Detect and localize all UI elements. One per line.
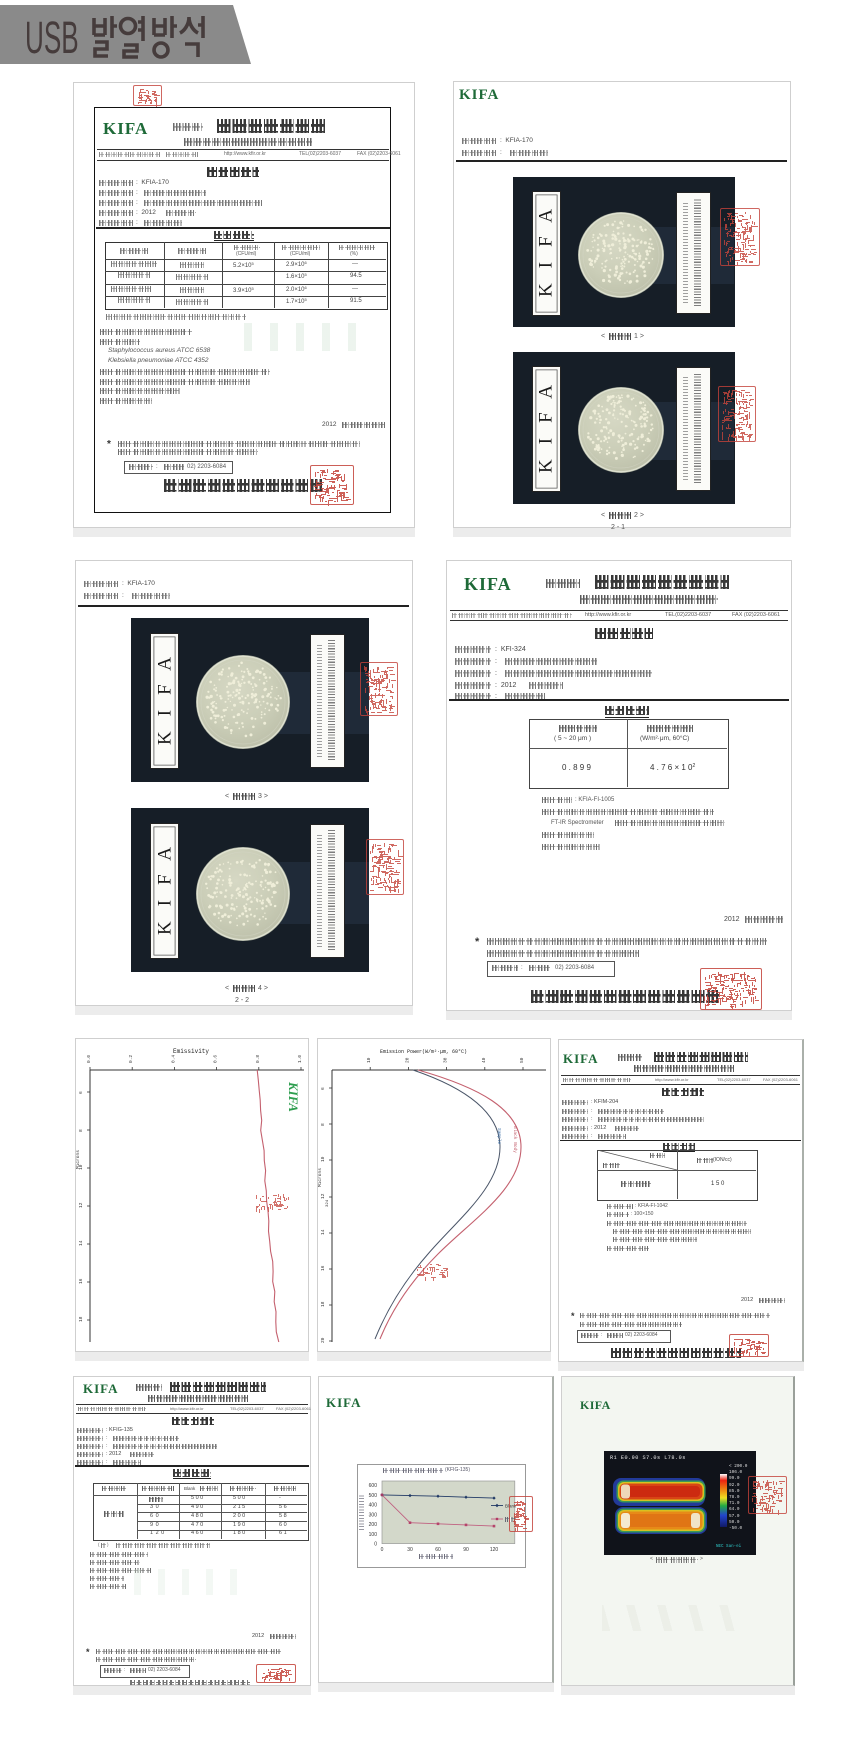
svg-text:0.0: 0.0 — [86, 1055, 92, 1063]
svg-text:Microns: Microns — [318, 1168, 323, 1187]
svg-text:40: 40 — [481, 1057, 487, 1063]
svg-text:16: 16 — [320, 1265, 326, 1271]
svg-text:300: 300 — [369, 1512, 378, 1518]
svg-text:600: 600 — [369, 1483, 378, 1489]
svg-text:100: 100 — [369, 1532, 378, 1538]
svg-text:Emission Power(W/m²·μm, 60°C): Emission Power(W/m²·μm, 60°C) — [380, 1049, 467, 1055]
svg-text:18: 18 — [320, 1301, 326, 1307]
svg-text:14: 14 — [78, 1240, 84, 1246]
svg-text:KIFA: KIFA — [548, 1078, 550, 1109]
svg-text:30: 30 — [407, 1547, 413, 1553]
svg-text:18: 18 — [78, 1316, 84, 1322]
svg-text:Black Body: Black Body — [512, 1126, 518, 1153]
svg-text:90: 90 — [463, 1547, 469, 1553]
svg-text:0.2: 0.2 — [128, 1055, 134, 1063]
svg-text:0: 0 — [381, 1547, 384, 1553]
svg-text:200: 200 — [369, 1522, 378, 1528]
svg-text:324: 324 — [326, 1199, 330, 1207]
svg-text:60: 60 — [435, 1547, 441, 1553]
svg-text:Emissivity: Emissivity — [173, 1048, 209, 1055]
svg-text:Sample: Sample — [496, 1128, 502, 1145]
svg-text:30: 30 — [443, 1057, 449, 1063]
svg-text:20: 20 — [320, 1337, 326, 1343]
svg-text:500: 500 — [369, 1493, 378, 1499]
svg-text:KIFA: KIFA — [286, 1081, 301, 1112]
svg-text:6: 6 — [78, 1091, 84, 1094]
svg-text:120: 120 — [490, 1547, 499, 1553]
svg-text:16: 16 — [78, 1278, 84, 1284]
svg-text:6: 6 — [320, 1087, 326, 1090]
svg-text:400: 400 — [369, 1503, 378, 1509]
svg-text:10: 10 — [320, 1156, 326, 1162]
svg-text:20: 20 — [404, 1057, 410, 1063]
svg-text:14: 14 — [320, 1229, 326, 1235]
svg-text:0: 0 — [374, 1542, 377, 1548]
svg-text:1.0: 1.0 — [297, 1055, 303, 1063]
svg-text:12: 12 — [78, 1202, 84, 1208]
svg-text:8: 8 — [320, 1123, 326, 1126]
svg-text:50: 50 — [519, 1057, 525, 1063]
svg-text:0.8: 0.8 — [255, 1055, 261, 1063]
svg-text:0.6: 0.6 — [213, 1055, 219, 1063]
svg-text:0.4: 0.4 — [170, 1055, 176, 1063]
svg-text:10: 10 — [366, 1057, 372, 1063]
svg-text:12: 12 — [320, 1193, 326, 1199]
svg-text:8: 8 — [78, 1129, 84, 1132]
svg-text:Microns: Microns — [76, 1150, 81, 1169]
